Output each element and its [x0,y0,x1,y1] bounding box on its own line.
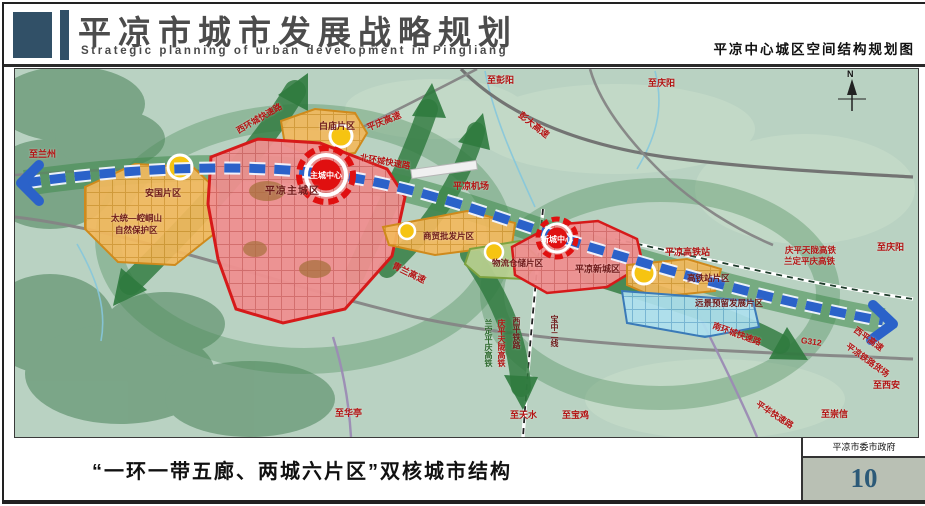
label-to-huating: 至华亭 [335,406,362,419]
header: 平凉市城市发展战略规划 Strategic planning of urban … [4,4,925,67]
label-to-qingyang-top: 至庆阳 [648,76,675,89]
label-wholesale-district: 商贸批发片区 [423,230,474,242]
label-qingping-tianlong-hsr-vertical: 庆平天陇高铁 [496,319,507,367]
page-subtitle: Strategic planning of urban development … [81,45,508,57]
structure-caption: “一环一带五廊、两城六片区”双核城市结构 [92,455,512,484]
label-nature-reserve-line1: 太统—崆峒山 [111,212,162,224]
label-landing-pingqing-hsr: 兰定平庆高铁 [784,255,835,267]
label-to-baoji: 至宝鸡 [562,408,589,421]
label-landing-pingqing-hsr-vertical: 兰定平庆高铁 [483,319,494,367]
page-number: 10 [803,458,925,500]
label-baozhong-railway-vertical: 宝中二线 [549,315,560,347]
label-main-city: 平凉主城区 [265,182,320,197]
planning-slide: 平凉市城市发展战略规划 Strategic planning of urban … [2,2,925,504]
label-hsr-station: 平凉高铁站 [665,245,710,258]
label-to-qingyang-right: 至庆阳 [877,240,904,253]
label-new-city: 平凉新城区 [575,262,620,275]
logo-bar [60,10,69,60]
compass-label: N [847,69,854,79]
label-to-pengyang: 至彭阳 [487,73,514,86]
map-title: 平凉中心城区空间结构规划图 [714,38,916,58]
organization-label: 平凉市委市政府 [803,438,925,458]
label-to-tianshui: 至天水 [510,408,537,421]
label-to-chongxin: 至崇信 [821,407,848,420]
label-xiping-railway-vertical: 西平铁路 [511,317,522,349]
label-baimiao-district: 白庙片区 [319,119,355,132]
label-hsr-district: 高铁站片区 [687,272,730,284]
label-to-lanzhou: 至兰州 [29,147,56,160]
planning-map: N 至兰州 至彭阳 至庆阳 彭大高速 平庆高速 西环城快速路 白庙片区 北环城快… [14,68,919,438]
label-main-city-center: 主城中心 [310,170,342,181]
label-new-city-center: 新城中心 [541,234,573,245]
label-to-xian: 至西安 [873,378,900,391]
logo-square [13,12,52,58]
footer-info-box: 平凉市委市政府 10 [801,438,925,500]
map-canvas [15,69,918,437]
label-anguo-district: 安国片区 [145,186,181,199]
label-future-district: 远景预留发展片区 [695,297,763,309]
label-logistics-district: 物流仓储片区 [492,257,543,269]
label-airport: 平凉机场 [453,179,489,192]
footer: “一环一带五廊、两城六片区”双核城市结构 平凉市委市政府 10 [4,438,925,500]
label-nature-reserve-line2: 自然保护区 [115,224,158,236]
